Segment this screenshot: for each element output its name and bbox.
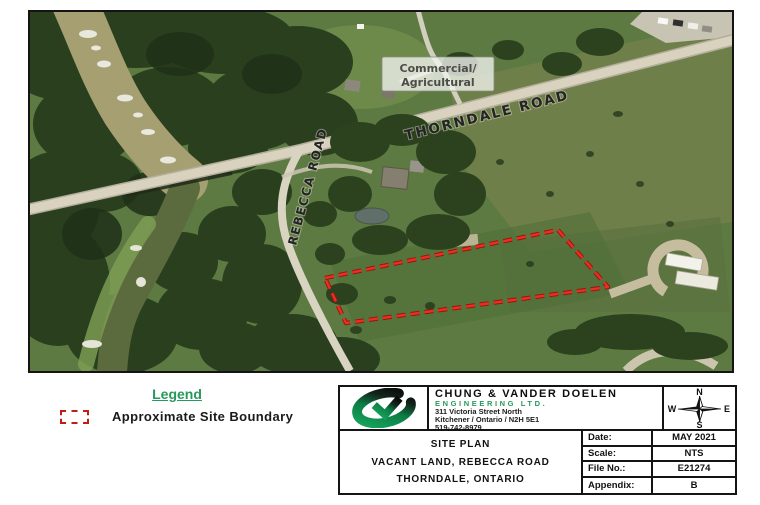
site-plan-page: Commercial/ Agricultural THORNDALE ROAD … [0,0,760,505]
title-block-body: SITE PLAN VACANT LAND, REBECCA ROAD THOR… [340,431,735,493]
compass-rose: N S W E [664,387,735,429]
compass-south-label: S [696,420,702,429]
roof-speck [357,24,364,29]
legend-item: Approximate Site Boundary [32,408,322,428]
house-center [381,167,409,190]
company-logo-icon [342,388,426,428]
zoning-text-line2: Agricultural [401,76,474,89]
meta-value-scale: NTS [653,447,735,463]
title-block-header: CHUNG & VANDER DOELEN ENGINEERING LTD. 3… [340,387,735,431]
compass-rose-icon: N S W E [664,387,735,429]
site-boundary-swatch [60,410,89,424]
meta-table: Date: MAY 2021 Scale: NTS File No.: E212… [583,431,735,493]
legend-item-label: Approximate Site Boundary [112,409,293,424]
project-line-2: VACANT LAND, REBECCA ROAD [371,457,549,468]
meta-label-fileno: File No.: [583,462,653,478]
zoning-label: Commercial/ Agricultural [382,57,494,91]
meta-value-appendix: B [653,478,735,494]
company-info: CHUNG & VANDER DOELEN ENGINEERING LTD. 3… [429,387,664,429]
meta-label-scale: Scale: [583,447,653,463]
compass-north-label: N [696,387,703,397]
meta-label-date: Date: [583,431,653,447]
legend: Legend Approximate Site Boundary [32,386,322,436]
compass-star [678,396,721,422]
legend-title: Legend [32,386,322,402]
project-line-3: THORNDALE, ONTARIO [396,474,524,485]
aerial-map: Commercial/ Agricultural THORNDALE ROAD … [28,10,734,373]
meta-value-fileno: E21274 [653,462,735,478]
meta-value-date: MAY 2021 [653,431,735,447]
meta-label-appendix: Appendix: [583,478,653,494]
company-logo [340,387,429,429]
company-phone: 519-742-8979 [435,424,662,429]
compass-east-label: E [724,404,730,414]
compass-west-label: W [668,404,677,414]
zoning-text-line1: Commercial/ [400,62,478,75]
project-title-cell: SITE PLAN VACANT LAND, REBECCA ROAD THOR… [340,431,583,493]
title-block: CHUNG & VANDER DOELEN ENGINEERING LTD. 3… [338,385,737,495]
project-line-1: SITE PLAN [431,439,490,450]
pond [355,208,389,224]
house-north [344,79,360,92]
aerial-map-graphic: Commercial/ Agricultural THORNDALE ROAD … [30,12,732,371]
